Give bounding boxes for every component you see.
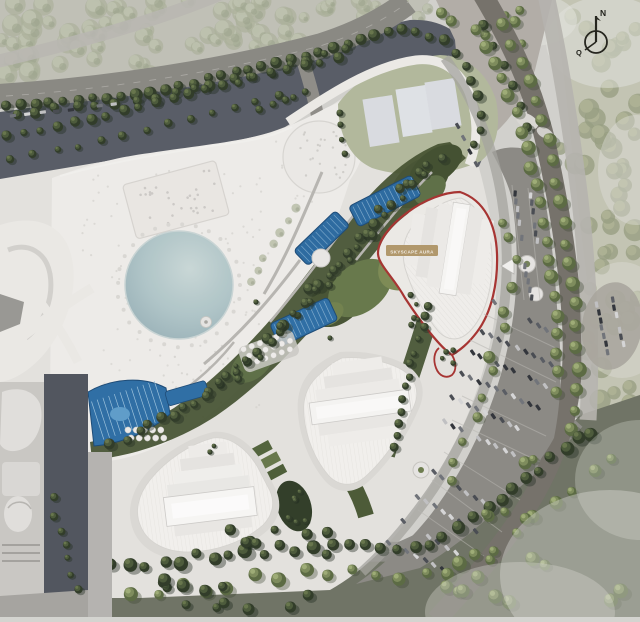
svg-text:Q: Q (576, 48, 582, 57)
svg-text:N: N (600, 8, 606, 18)
